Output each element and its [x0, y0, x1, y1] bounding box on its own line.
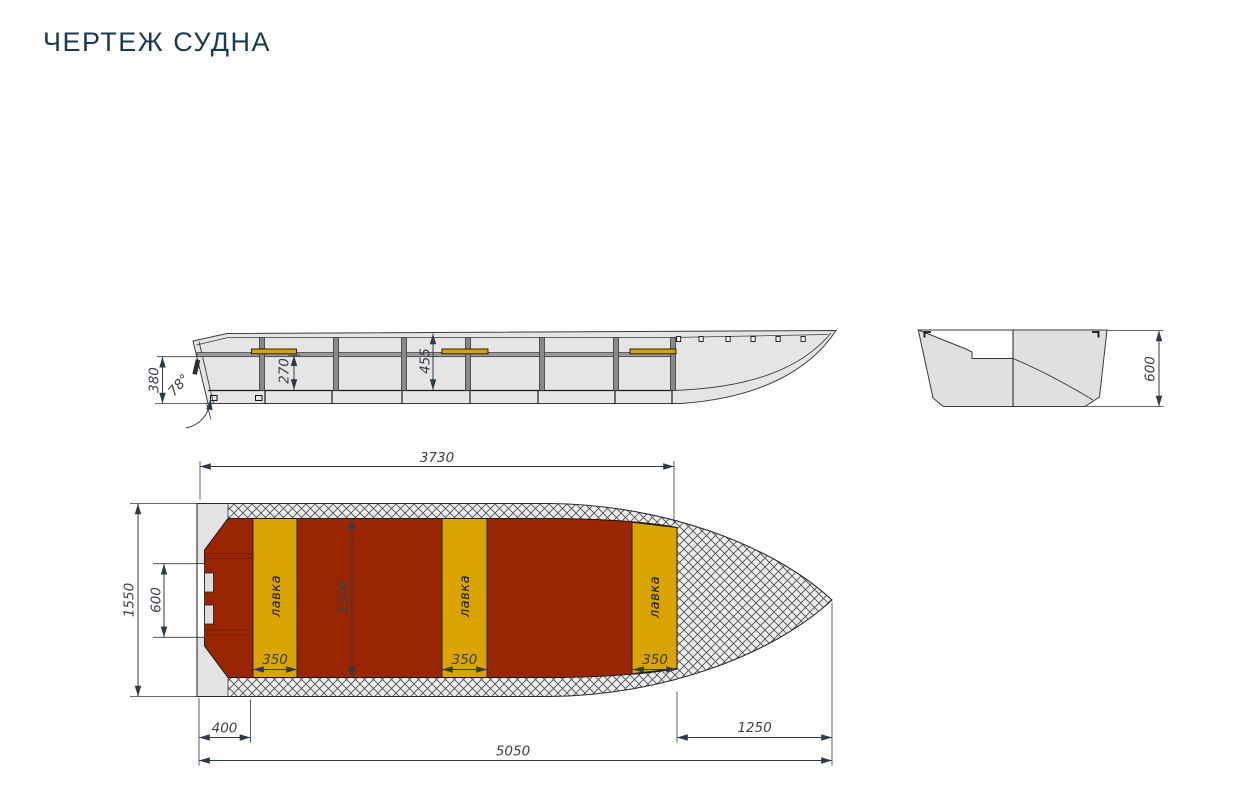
- side-bench-3: [630, 349, 676, 354]
- cross-section-view: 600: [918, 330, 1163, 407]
- bench-2-label: лавка: [458, 575, 473, 618]
- dim-600-plan-text: 600: [149, 587, 165, 613]
- dim-400: 400: [199, 698, 251, 766]
- side-bench-2: [442, 349, 488, 354]
- dim-455-text: 455: [418, 348, 434, 374]
- dim-350-bench-1-text: 350: [262, 652, 288, 668]
- side-view: 380 78° 270 455: [147, 331, 837, 429]
- dim-1300-text: 1300: [336, 580, 352, 614]
- plan-view: лавка лавка лавка 350 350 350 1300 1550: [122, 450, 833, 766]
- boat-drawing: 380 78° 270 455 600: [0, 0, 1233, 789]
- bench-3-label: лавка: [648, 576, 663, 619]
- dim-600-section-text: 600: [1143, 356, 1159, 382]
- dim-270-text: 270: [277, 358, 293, 384]
- dim-1250-text: 1250: [737, 720, 771, 736]
- dim-400-text: 400: [212, 721, 238, 737]
- dim-angle-78-text: 78°: [165, 371, 193, 399]
- dim-5050-text: 5050: [496, 744, 530, 760]
- dim-1550-text: 1550: [122, 583, 138, 617]
- dim-350-bench-2-text: 350: [452, 652, 478, 668]
- dim-5050: 5050: [199, 744, 832, 761]
- dim-350-bench-3-text: 350: [642, 652, 668, 668]
- bench-1-label: лавка: [269, 575, 284, 618]
- plan-motor-recess: [187, 564, 205, 638]
- side-bench-1: [252, 349, 297, 354]
- section-left-half: [918, 330, 1013, 407]
- dim-380-text: 380: [147, 367, 163, 393]
- dim-3730-text: 3730: [420, 450, 454, 466]
- section-right-half: [1013, 330, 1107, 407]
